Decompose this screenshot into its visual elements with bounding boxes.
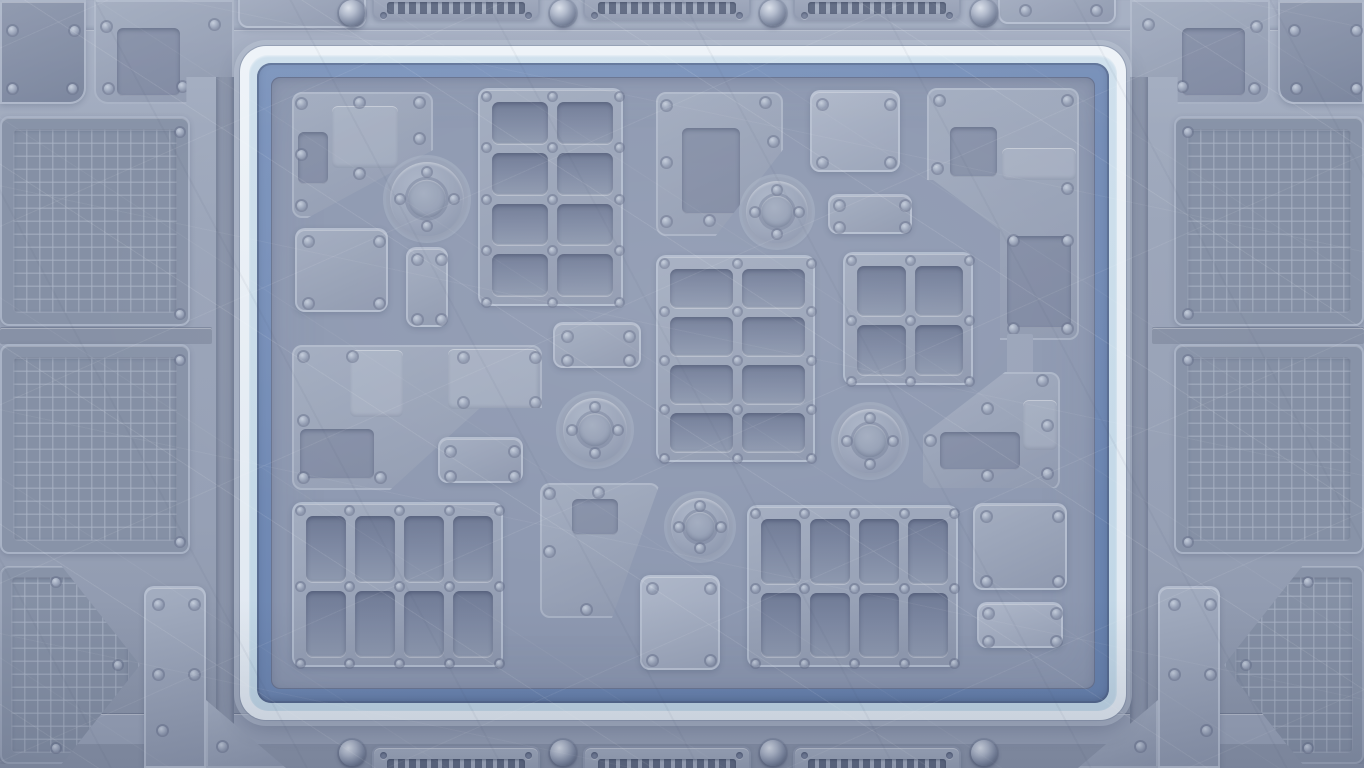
- vent-cell: [670, 413, 733, 452]
- plate-e: [295, 228, 388, 312]
- recess-panel: [1007, 236, 1071, 328]
- rivet: [297, 660, 304, 667]
- rivet: [1063, 236, 1072, 245]
- rivet: [591, 449, 599, 457]
- rivet: [496, 660, 503, 667]
- port-hatch: [685, 512, 715, 542]
- rivet: [648, 584, 657, 593]
- rivet: [1043, 469, 1052, 478]
- rivet: [818, 100, 827, 109]
- rivet: [346, 507, 353, 514]
- rivet: [375, 299, 384, 308]
- plate-l: [977, 602, 1063, 648]
- rivet: [808, 308, 815, 315]
- rivet: [734, 308, 741, 315]
- rivet: [1052, 637, 1061, 646]
- plate-h: [553, 322, 641, 368]
- rivet: [545, 547, 554, 556]
- rivet: [984, 637, 993, 646]
- rivet: [549, 93, 556, 100]
- rivet: [848, 378, 855, 385]
- rivet: [1063, 184, 1072, 193]
- rivet: [1009, 324, 1018, 333]
- vent-cell: [492, 102, 548, 144]
- rivet: [616, 247, 623, 254]
- rivet: [446, 507, 453, 514]
- rivet: [966, 317, 973, 324]
- vent-cell: [859, 593, 899, 658]
- rivet: [706, 656, 715, 665]
- rivet: [848, 317, 855, 324]
- rivet: [346, 583, 353, 590]
- plate-neck: [1007, 334, 1033, 376]
- rivet: [396, 507, 403, 514]
- vent-cell: [742, 269, 805, 308]
- rivet: [299, 352, 308, 361]
- rivet: [625, 332, 634, 341]
- rivet: [886, 158, 895, 167]
- rivet: [901, 223, 910, 232]
- vent-grid-center: [656, 255, 815, 462]
- vent-cell: [670, 317, 733, 356]
- rivet: [413, 255, 422, 264]
- vent-cell: [492, 254, 548, 296]
- rivet: [889, 437, 897, 445]
- rivet: [396, 660, 403, 667]
- rivet: [299, 473, 308, 482]
- rivet: [616, 196, 623, 203]
- rivet: [966, 257, 973, 264]
- rivet: [549, 196, 556, 203]
- rivet: [415, 98, 424, 107]
- vent-cell: [857, 266, 906, 316]
- rivet: [661, 260, 668, 267]
- rivet: [983, 471, 992, 480]
- rivet: [483, 196, 490, 203]
- rivet: [835, 201, 844, 210]
- rivet: [614, 426, 622, 434]
- recess-panel: [572, 499, 618, 535]
- rivet: [751, 208, 759, 216]
- rivet: [1063, 96, 1072, 105]
- rivet: [851, 510, 858, 517]
- rivet: [761, 98, 770, 107]
- port-hatch: [408, 180, 446, 218]
- vent-cell: [404, 516, 444, 582]
- rivet: [734, 406, 741, 413]
- rivet: [773, 186, 781, 194]
- rivet: [648, 656, 657, 665]
- port-hatch: [578, 413, 611, 446]
- rivet: [423, 168, 431, 176]
- rivet: [1043, 421, 1052, 430]
- rivet: [549, 299, 556, 306]
- plate-i: [640, 575, 720, 670]
- rivet: [866, 460, 874, 468]
- rivet: [423, 222, 431, 230]
- port-hatch: [761, 196, 793, 228]
- rivet: [848, 257, 855, 264]
- rivet: [483, 247, 490, 254]
- vent-cell: [453, 591, 493, 657]
- rivet: [1054, 512, 1063, 521]
- rivet: [346, 660, 353, 667]
- rivet: [531, 398, 540, 407]
- rivet: [531, 353, 540, 362]
- rivet: [545, 489, 554, 498]
- rivet: [808, 406, 815, 413]
- rivet: [616, 93, 623, 100]
- recess-panel: [682, 128, 740, 214]
- rivet: [1054, 577, 1063, 586]
- rivet: [446, 472, 455, 481]
- rivet: [801, 660, 808, 667]
- rivet: [348, 352, 357, 361]
- rivet: [568, 426, 576, 434]
- recess-panel: [1023, 400, 1057, 450]
- vent-cell: [810, 519, 850, 584]
- recess-panel: [950, 127, 997, 177]
- vent-grid-c: [292, 502, 503, 667]
- vent-cell: [557, 102, 613, 144]
- scifi-metal-playmat: [0, 0, 1364, 768]
- rivet: [591, 403, 599, 411]
- vent-cell: [742, 317, 805, 356]
- rivet: [926, 436, 935, 445]
- rivet: [662, 101, 671, 110]
- rivet: [705, 216, 714, 225]
- rivet: [662, 158, 671, 167]
- rivet: [675, 523, 683, 531]
- rivet: [459, 353, 468, 362]
- rivet: [297, 507, 304, 514]
- rivet: [661, 455, 668, 462]
- vent-cell: [915, 266, 964, 316]
- rivet: [907, 378, 914, 385]
- rivet: [752, 585, 759, 592]
- rivet: [982, 577, 991, 586]
- rivet: [549, 144, 556, 151]
- rivet: [808, 455, 815, 462]
- rivet: [625, 356, 634, 365]
- rivet: [801, 510, 808, 517]
- port-c: [563, 398, 627, 462]
- plate-f: [406, 247, 448, 327]
- rivet: [696, 502, 704, 510]
- rivet: [801, 585, 808, 592]
- rivet: [808, 260, 815, 267]
- rivet: [415, 134, 424, 143]
- rivet: [446, 660, 453, 667]
- rivet: [951, 585, 958, 592]
- rivet: [1063, 324, 1072, 333]
- angled-plate-d: [920, 372, 1060, 490]
- rivet: [795, 208, 803, 216]
- rivet: [982, 512, 991, 521]
- rivet: [413, 315, 422, 324]
- rivet: [437, 255, 446, 264]
- vent-grid-b: [747, 505, 958, 667]
- port-b: [746, 181, 808, 243]
- rivet: [496, 583, 503, 590]
- rivet: [304, 299, 313, 308]
- rivet: [933, 164, 942, 173]
- rivet: [446, 583, 453, 590]
- rivet: [851, 585, 858, 592]
- rivet: [396, 583, 403, 590]
- port-a: [390, 162, 464, 236]
- rivet: [717, 523, 725, 531]
- rivet: [1038, 376, 1047, 385]
- vent-cell: [557, 153, 613, 195]
- rivet: [297, 201, 306, 210]
- vent-cell: [742, 365, 805, 404]
- rivet: [886, 100, 895, 109]
- vent-cell: [355, 516, 395, 582]
- port-e: [838, 409, 902, 473]
- rivet: [734, 455, 741, 462]
- rivet: [966, 378, 973, 385]
- rivet: [843, 437, 851, 445]
- vent-cell: [670, 365, 733, 404]
- rivet: [752, 510, 759, 517]
- rivet: [304, 237, 313, 246]
- rivet: [1052, 609, 1061, 618]
- rivet: [773, 230, 781, 238]
- rivet: [769, 137, 778, 146]
- rivet: [396, 195, 404, 203]
- rivet: [706, 584, 715, 593]
- plate-k: [973, 503, 1067, 590]
- vent-cell: [761, 593, 801, 658]
- vent-cell: [557, 254, 613, 296]
- rivet: [866, 414, 874, 422]
- rivet: [616, 299, 623, 306]
- rivet: [594, 488, 603, 497]
- rivet: [549, 247, 556, 254]
- plate-c: [810, 90, 900, 172]
- rivet: [901, 585, 908, 592]
- rivet: [355, 98, 364, 107]
- recess-panel: [300, 429, 374, 479]
- vent-cell: [557, 204, 613, 246]
- rivet: [734, 357, 741, 364]
- vent-cell: [908, 519, 948, 584]
- port-hatch: [853, 424, 886, 457]
- rivet: [818, 158, 827, 167]
- vent-grid-a: [478, 88, 623, 306]
- rivet: [563, 332, 572, 341]
- vent-cell: [306, 516, 346, 582]
- rivet: [299, 416, 308, 425]
- rivet: [446, 447, 455, 456]
- rivet: [661, 357, 668, 364]
- rivet: [496, 507, 503, 514]
- rivet: [662, 217, 671, 226]
- rivet: [951, 510, 958, 517]
- rivet: [510, 472, 519, 481]
- interior-panels-layer: [0, 0, 1364, 768]
- rivet: [808, 357, 815, 364]
- rivet: [907, 317, 914, 324]
- rivet: [752, 660, 759, 667]
- vent-cell: [859, 519, 899, 584]
- rivet: [376, 473, 385, 482]
- rivet: [483, 144, 490, 151]
- rivet: [483, 93, 490, 100]
- vent-cell: [670, 269, 733, 308]
- port-d: [671, 498, 729, 556]
- rivet: [297, 583, 304, 590]
- rivet: [696, 544, 704, 552]
- vent-cell: [355, 591, 395, 657]
- rivet: [661, 406, 668, 413]
- vent-cell: [492, 204, 548, 246]
- rivet: [935, 96, 944, 105]
- vent-cell: [915, 325, 964, 375]
- recess-panel: [1002, 148, 1076, 180]
- vent-cell: [761, 519, 801, 584]
- rivet: [355, 169, 364, 178]
- rivet: [297, 99, 306, 108]
- vent-cell: [810, 593, 850, 658]
- rivet: [616, 144, 623, 151]
- rivet: [582, 605, 591, 614]
- vent-cell: [453, 516, 493, 582]
- plate-g: [438, 437, 523, 483]
- rivet: [835, 223, 844, 232]
- rivet: [851, 660, 858, 667]
- rivet: [734, 260, 741, 267]
- recess-panel: [940, 432, 1020, 470]
- rivet: [483, 299, 490, 306]
- rivet: [983, 404, 992, 413]
- plate-d: [828, 194, 912, 234]
- vent-cell: [857, 325, 906, 375]
- vent-cell: [908, 593, 948, 658]
- rivet: [951, 660, 958, 667]
- rivet: [459, 398, 468, 407]
- rivet: [901, 660, 908, 667]
- rivet: [297, 150, 306, 159]
- rivet: [661, 308, 668, 315]
- rivet: [907, 257, 914, 264]
- rivet: [375, 237, 384, 246]
- rivet: [1009, 236, 1018, 245]
- rivet: [984, 609, 993, 618]
- vent-cell: [306, 591, 346, 657]
- rivet: [563, 356, 572, 365]
- recess-panel: [332, 106, 398, 168]
- rivet: [901, 201, 910, 210]
- vent-cell: [742, 413, 805, 452]
- vent-grid-square: [843, 252, 973, 385]
- rivet: [901, 510, 908, 517]
- rivet: [450, 195, 458, 203]
- recess-panel: [350, 350, 403, 417]
- rivet: [437, 315, 446, 324]
- rivet: [510, 447, 519, 456]
- vent-cell: [404, 591, 444, 657]
- vent-cell: [492, 153, 548, 195]
